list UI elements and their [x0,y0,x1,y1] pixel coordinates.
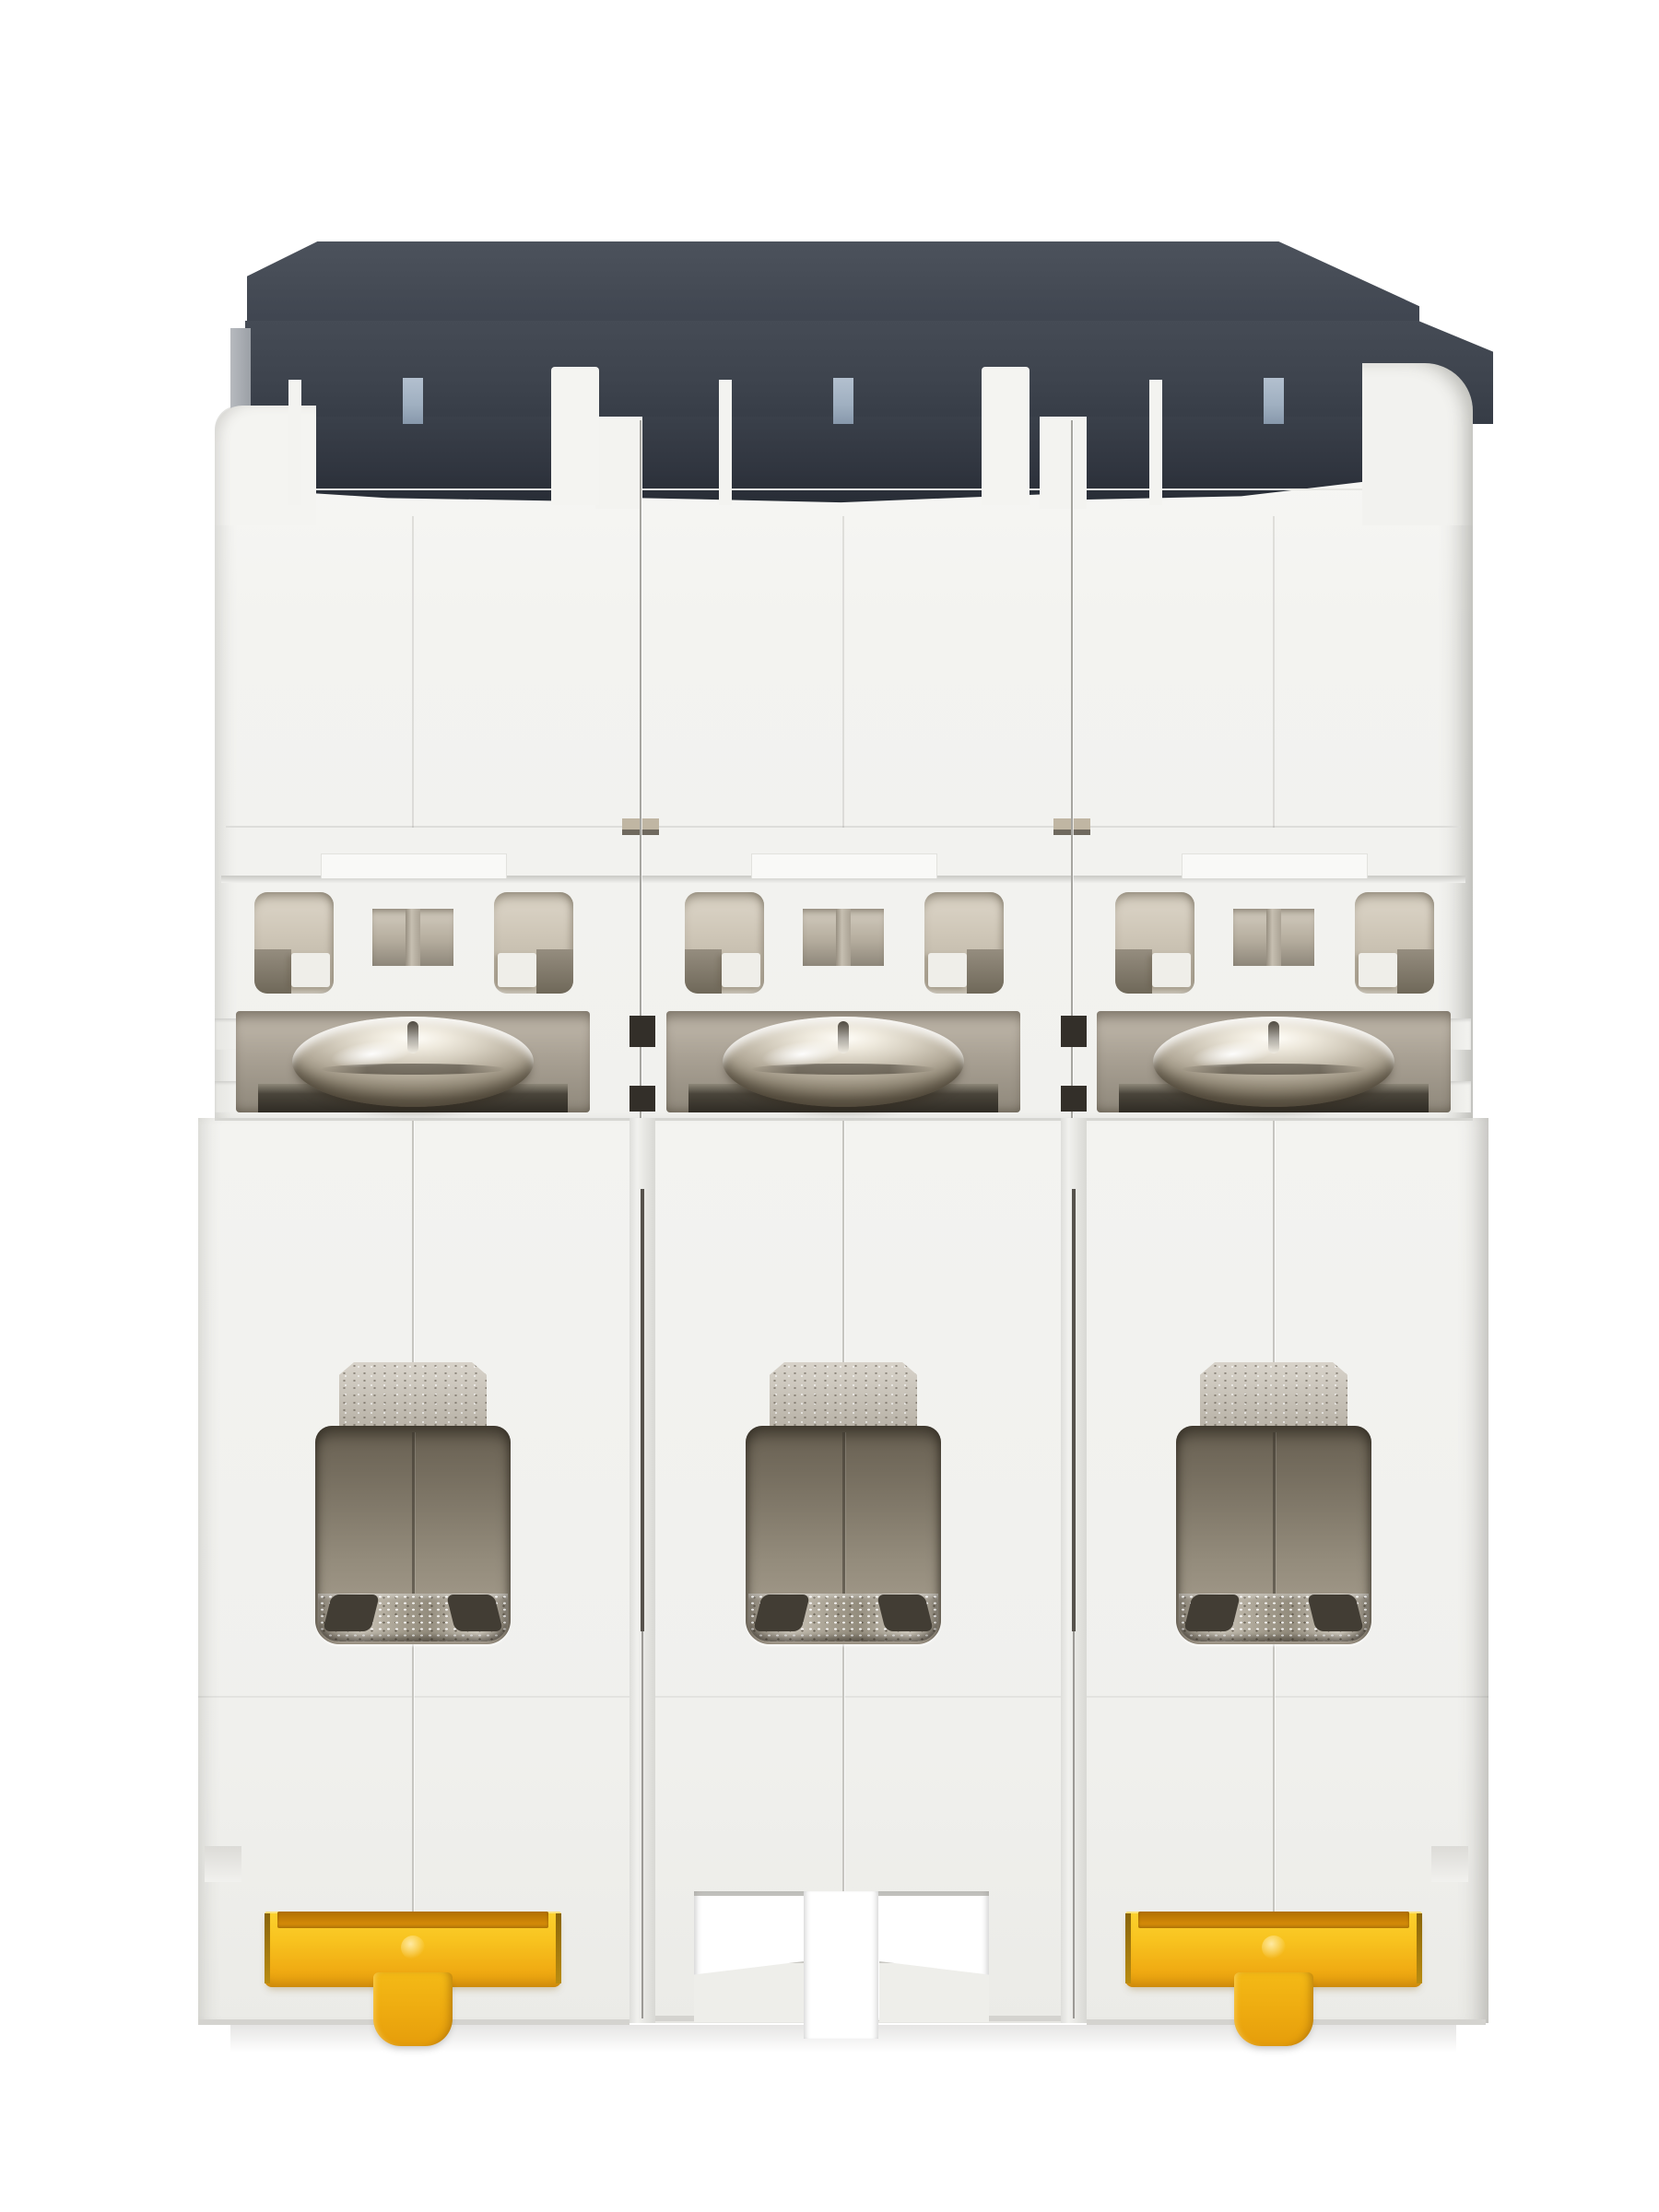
terminal-opening [746,1426,941,1644]
blue-alignment-tab [833,378,853,424]
din-clip-recess [1138,1912,1409,1928]
vent-slot-pillar [836,909,851,966]
vent-interior-wall [722,953,759,987]
clip-slot-stem [804,1891,878,2039]
vent-slot-pillar [1266,909,1281,966]
module-seam-left [640,420,641,1118]
cap-notch [982,367,1030,505]
terminal-lip-wing [323,1594,380,1631]
seam-slot [1061,1086,1087,1112]
terminal-plate [339,1362,487,1426]
vent-slot [1233,909,1314,966]
vent-interior-wall [291,953,329,987]
vent-interior-step [967,949,1004,994]
terminal-plate [1200,1362,1347,1426]
seam-slot [1061,1016,1087,1047]
cap-main-slab [245,321,1493,424]
vent-interior-wall [1359,953,1396,987]
cap-slit [1149,380,1162,505]
edge-step [205,1846,241,1882]
blue-alignment-tab [403,378,423,424]
terminal-centre-line [1273,1432,1276,1598]
module-seam-right [1071,420,1073,1118]
terminal-lip-wing [753,1594,810,1631]
vent-window-left [1115,892,1194,994]
terminal-lip-wing [1183,1594,1241,1631]
vent-window-right [1355,892,1434,994]
edge-step [1431,1846,1468,1882]
seam-slit-thin [1073,1631,1075,2018]
cap-top-slab [247,241,1419,324]
terminal-lip-wing [446,1594,503,1631]
parting-line-upper [1273,516,1275,828]
ledge-tab [1182,853,1368,878]
seam-slit [641,1189,644,1631]
body-step-line [215,1118,1473,1121]
cap-slit [719,380,732,505]
cap-notch [551,367,599,505]
vent-window-right [494,892,573,994]
vent-slot [803,909,884,966]
blue-alignment-tab [1264,378,1284,424]
din-clip-highlight [401,1935,425,1959]
din-clip-pull-tab [373,1972,453,2046]
housing-top-face-line [230,488,1456,490]
seam-slit-thin [641,1631,643,2018]
vent-slot-pillar [406,909,420,966]
cap-slit [288,380,301,505]
vent-interior-step [254,949,291,994]
seam-groove-right [1061,1118,1087,2023]
terminal-screw [292,1017,534,1107]
seam-groove-left [629,1118,655,2023]
ledge-tab [321,853,507,878]
terminal-opening [315,1426,511,1644]
vent-interior-wall [928,953,966,987]
vent-interior-step [536,949,573,994]
vent-interior-wall [1152,953,1190,987]
terminal-opening [1176,1426,1371,1644]
parting-line-upper [412,516,414,828]
product-photo-circuit-breaker [0,0,1659,2212]
vent-window-left [685,892,764,994]
terminal-centre-line [842,1432,845,1598]
seam-slot [629,1016,655,1047]
housing-top-right-corner [1362,363,1473,525]
terminal-centre-line [412,1432,415,1598]
din-clip-pull-tab [1234,1972,1313,2046]
terminal-plate [770,1362,917,1426]
vent-window-right [924,892,1004,994]
cap-teeth-gap [1040,417,1087,509]
ledge-tab [751,853,937,878]
cap-teeth-pole-2 [642,417,1040,505]
terminal-lip-wing [1307,1594,1364,1631]
terminal-screw [1153,1017,1394,1107]
terminal-lip-wing [877,1594,934,1631]
terminal-screw [723,1017,964,1107]
seam-slit [1072,1189,1076,1631]
parting-line-upper [842,516,844,828]
vent-interior-step [1115,949,1152,994]
vent-interior-wall [498,953,535,987]
din-clip-recess [277,1912,548,1928]
seam-slot [629,1086,655,1112]
cap-teeth-gap [595,417,642,509]
vent-slot [372,909,453,966]
vent-interior-step [1397,949,1434,994]
vent-interior-step [685,949,722,994]
din-clip-highlight [1262,1935,1286,1959]
vent-window-left [254,892,334,994]
